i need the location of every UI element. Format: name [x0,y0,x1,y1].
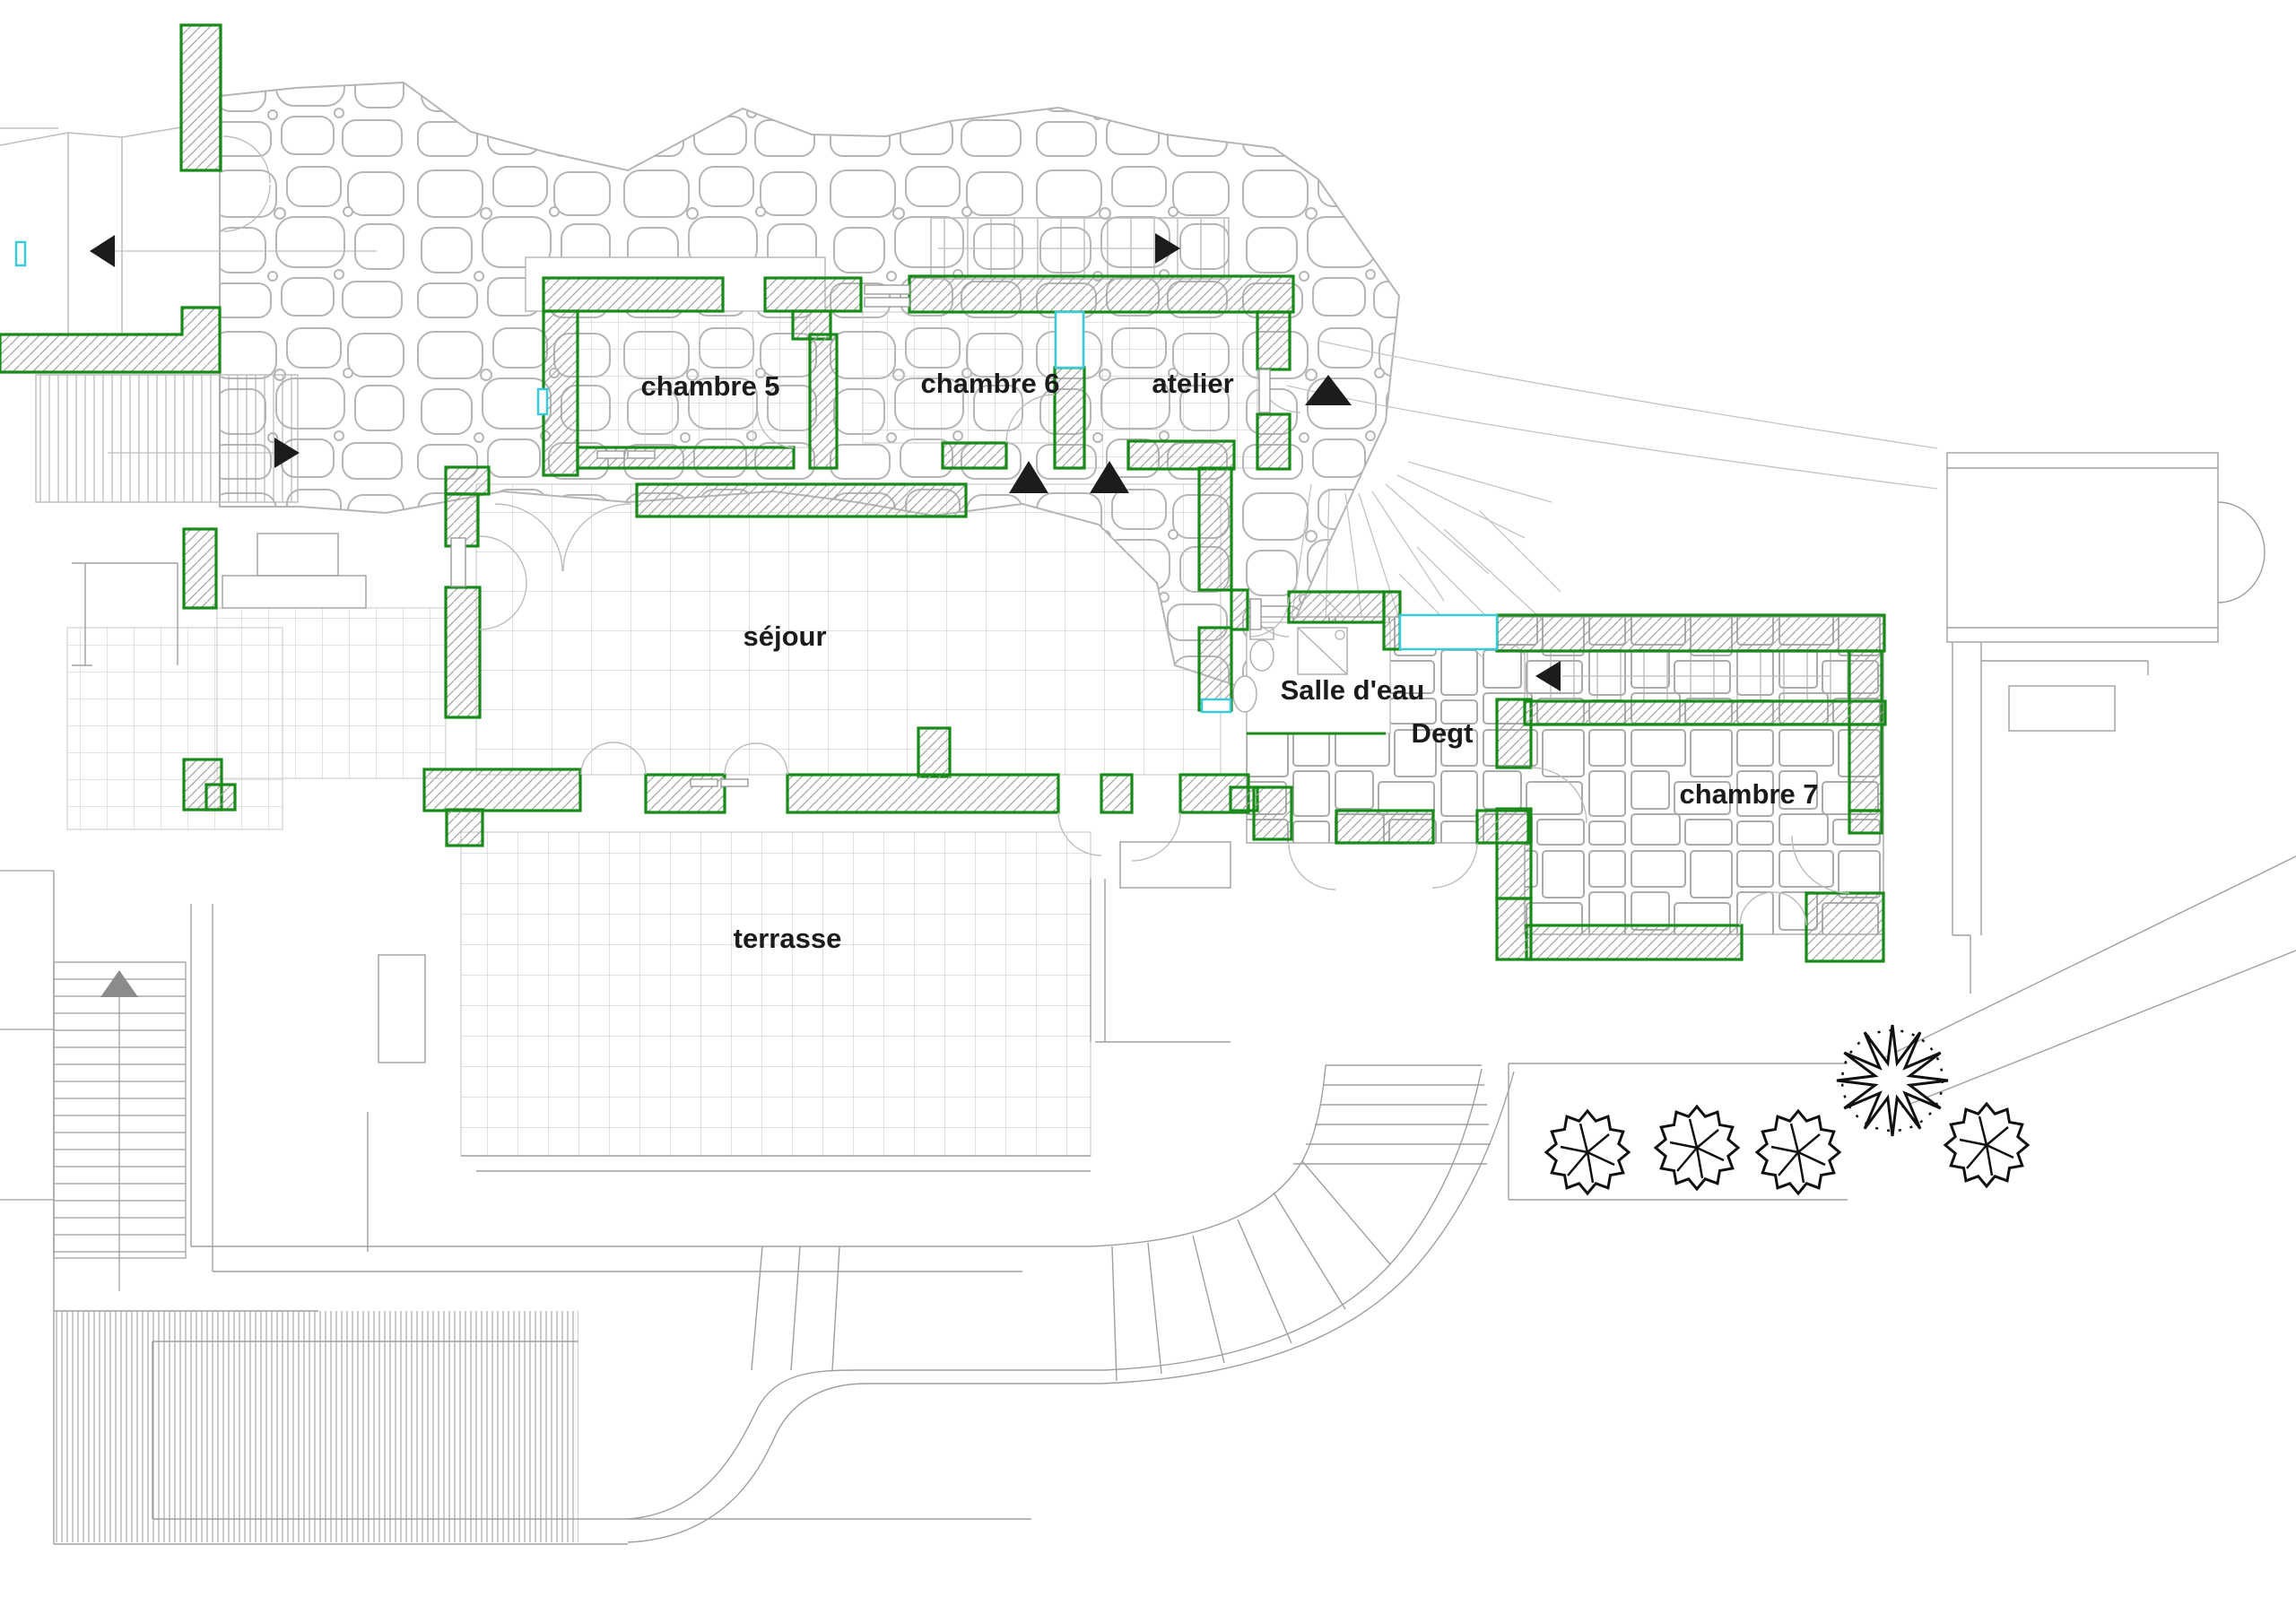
planter-box [378,955,425,1063]
wall-segment [1199,468,1231,590]
window-cyan [1202,699,1231,712]
wall-segment [424,769,580,811]
staircase-top [931,218,1229,279]
planter-box [1120,842,1231,888]
wall-segment [1497,898,1531,959]
tile-floor-terrasse [461,832,1091,1156]
room-label-degt: Degt [1412,717,1474,750]
wall-segment [1336,811,1433,843]
wall-segment [544,278,723,311]
window-cyan [1056,312,1083,368]
wall-segment [1128,441,1234,469]
wall-segment [765,278,861,311]
wall-segment [909,276,1293,312]
wall-segment [1101,775,1132,812]
wall-segment [446,587,480,717]
wall-segment [1477,811,1528,843]
room-label-atelier: atelier [1152,368,1233,400]
staircase-degt [1525,652,1848,701]
wall-segment [918,728,950,777]
floor-plan-canvas: chambre 5 chambre 6 atelier séjour Salle… [0,0,2296,1623]
wall-segment [1257,414,1290,469]
wall-segment [637,484,966,516]
wall-segment [787,775,1058,812]
wall-segment [1526,925,1742,959]
wall-segment [544,311,578,475]
floor-plan-drawing [0,0,2296,1623]
arrow-left-icon [90,235,115,267]
room-label-chambre-7: chambre 7 [1679,778,1818,811]
wall-segment [1849,811,1882,833]
wall-segment [1806,893,1883,961]
wall-segment [206,785,235,810]
window-cyan [16,242,25,265]
wall-segment [1384,592,1400,649]
outbuilding [1947,453,2218,642]
room-label-salle-deau: Salle d'eau [1281,674,1425,707]
tile-floor-sejour [476,484,1221,775]
vegetation [1546,1025,2028,1193]
window-cyan [538,389,547,414]
room-label-chambre-5: chambre 5 [640,370,779,403]
walkway-west [36,375,300,502]
room-label-terrasse: terrasse [734,923,842,955]
wall-segment [184,529,216,608]
window-cyan [1400,615,1497,649]
room-label-chambre-6: chambre 6 [920,368,1059,400]
wall-segment [1497,615,1884,651]
wall-segment [1199,628,1231,710]
wall-segment [810,334,837,468]
wall-segment [1231,590,1248,629]
wall-segment [181,25,221,170]
wall-segment [447,810,483,846]
wall-segment [1254,787,1291,839]
adjacent-building-outline [0,127,181,336]
wall-segment [1289,592,1384,622]
tile-floor-lower-left [67,628,283,829]
room-label-sejour: séjour [743,621,826,653]
wall-segment [1525,701,1885,725]
wall-segment [0,308,220,372]
wall-segment [446,467,489,494]
sink-icon [1233,676,1257,712]
wall-segment [1849,651,1882,811]
wall-segment [1257,312,1290,369]
wall-segment [943,443,1006,468]
